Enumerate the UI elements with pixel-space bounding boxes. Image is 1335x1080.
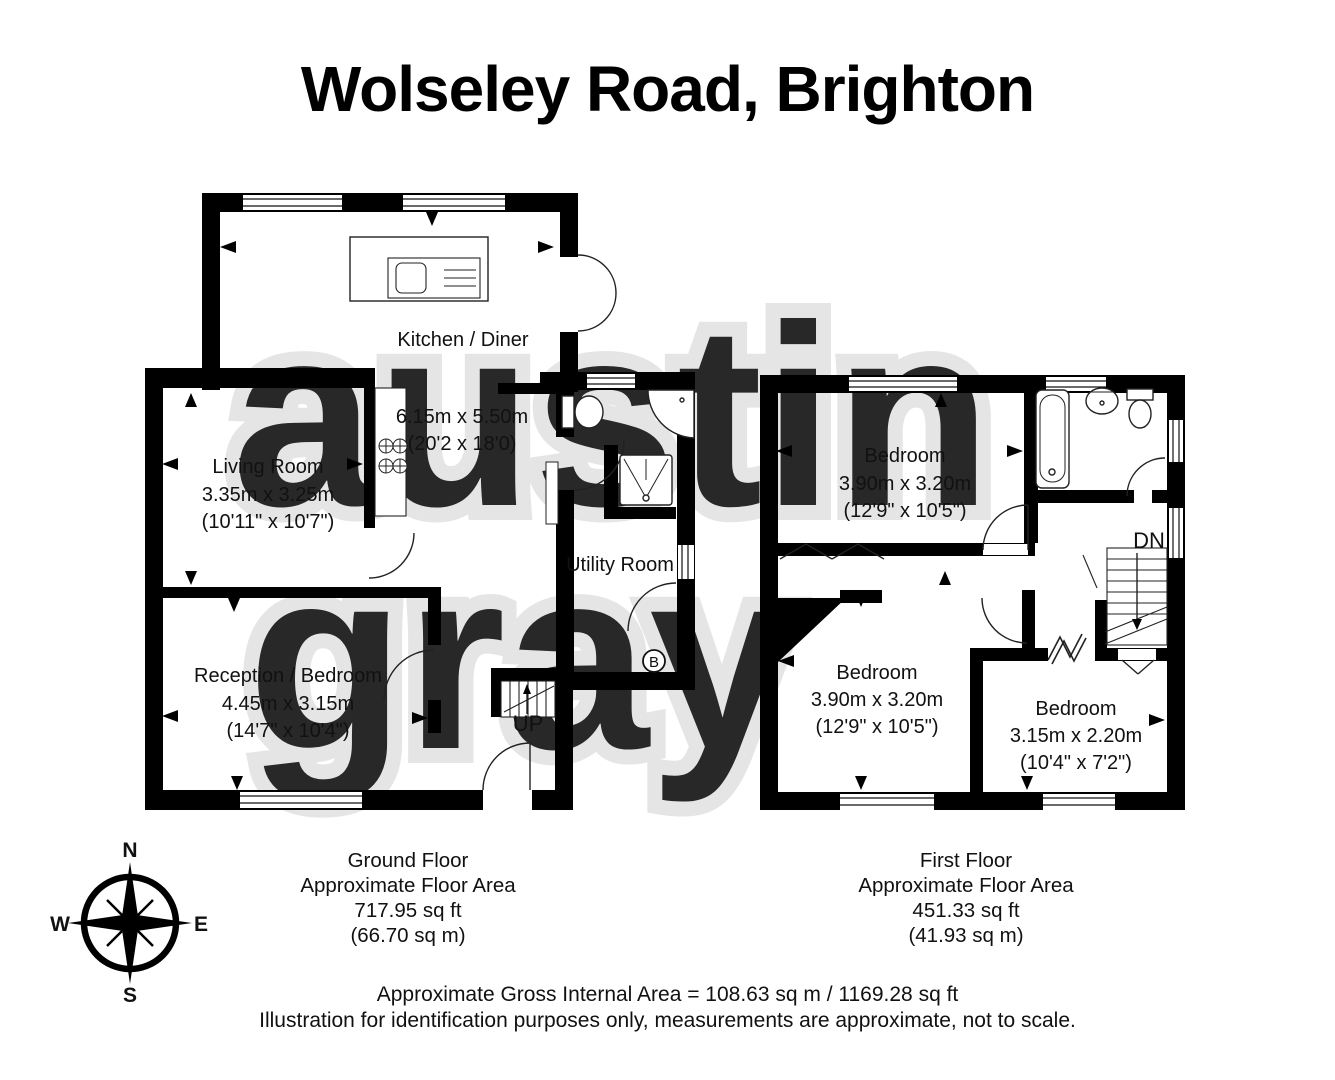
kitchen-island-sink	[396, 263, 426, 293]
stairs-down	[1105, 548, 1167, 645]
bedroom1-label: Bedroom	[864, 445, 945, 467]
ground-floor-area-title: Approximate Floor Area	[208, 873, 608, 898]
bedroom1-dim-imperial: (12'9" x 10'5")	[843, 500, 966, 522]
first-floor-area-title: Approximate Floor Area	[766, 873, 1166, 898]
living-dim-metric: 3.35m x 3.25m	[202, 484, 334, 506]
first-floor-name: First Floor	[766, 848, 1166, 873]
stairs-down-label: DN	[1133, 528, 1165, 553]
first-floor-area-caption: First Floor Approximate Floor Area 451.3…	[766, 848, 1166, 948]
compass-label-west: W	[50, 913, 70, 936]
bedroom2-door-arc	[982, 598, 1027, 643]
compass-label-east: E	[194, 913, 208, 936]
bedroom2-dim-metric: 3.90m x 3.20m	[811, 689, 943, 711]
disclaimer-text: Illustration for identification purposes…	[0, 1008, 1335, 1034]
bedroom3-dim-metric: 3.15m x 2.20m	[1010, 725, 1142, 747]
reception-dim-imperial: (14'7" x 10'4")	[226, 720, 349, 742]
toilet-icon	[1127, 389, 1153, 428]
first-floor-area-sqm: (41.93 sq m)	[766, 923, 1166, 948]
living-label: Living Room	[212, 456, 323, 478]
footer-disclaimer: Approximate Gross Internal Area = 108.63…	[0, 982, 1335, 1034]
ground-floor-name: Ground Floor	[208, 848, 608, 873]
kitchen-label: Kitchen / Diner	[397, 329, 529, 351]
utility-label: Utility Room	[566, 554, 674, 576]
kitchen-dim-metric: 6.15m x 5.50m	[396, 406, 528, 428]
radiator	[546, 462, 558, 524]
floorplan-page: Wolseley Road, Brighton austin austin gr…	[0, 0, 1335, 1080]
boiler-label: B	[649, 654, 659, 671]
gross-internal-area: Approximate Gross Internal Area = 108.63…	[0, 982, 1335, 1008]
bathtub-icon	[1036, 390, 1069, 488]
compass-label-north: N	[122, 839, 137, 862]
watermark-line2-fill: gray	[248, 514, 795, 804]
bedroom3-dim-imperial: (10'4" x 7'2")	[1020, 752, 1132, 774]
bedroom2-dim-imperial: (12'9" x 10'5")	[815, 716, 938, 738]
reception-dim-metric: 4.45m x 3.15m	[222, 693, 354, 715]
kitchen-dim-imperial: (20'2 x 18'0)	[408, 433, 517, 455]
ground-floor-area-sqm: (66.70 sq m)	[208, 923, 608, 948]
bedroom3-door-mark	[1122, 660, 1138, 674]
first-floor-area-sqft: 451.33 sq ft	[766, 898, 1166, 923]
bedroom2-label: Bedroom	[836, 662, 917, 684]
reception-label: Reception / Bedroom	[194, 665, 382, 687]
landing-door-leaf	[1083, 555, 1097, 588]
bedroom1-dim-metric: 3.90m x 3.20m	[839, 473, 971, 495]
basin-icon	[1086, 388, 1118, 414]
stairs-up-label: UP	[513, 711, 544, 736]
living-dim-imperial: (10'11" x 10'7")	[202, 511, 335, 533]
ground-floor-area-sqft: 717.95 sq ft	[208, 898, 608, 923]
ground-floor-area-caption: Ground Floor Approximate Floor Area 717.…	[208, 848, 608, 948]
bedroom3-label: Bedroom	[1035, 698, 1116, 720]
bedroom3-door-mark	[1138, 660, 1154, 674]
shower-tray-icon	[620, 455, 672, 505]
toilet-icon	[562, 396, 603, 428]
